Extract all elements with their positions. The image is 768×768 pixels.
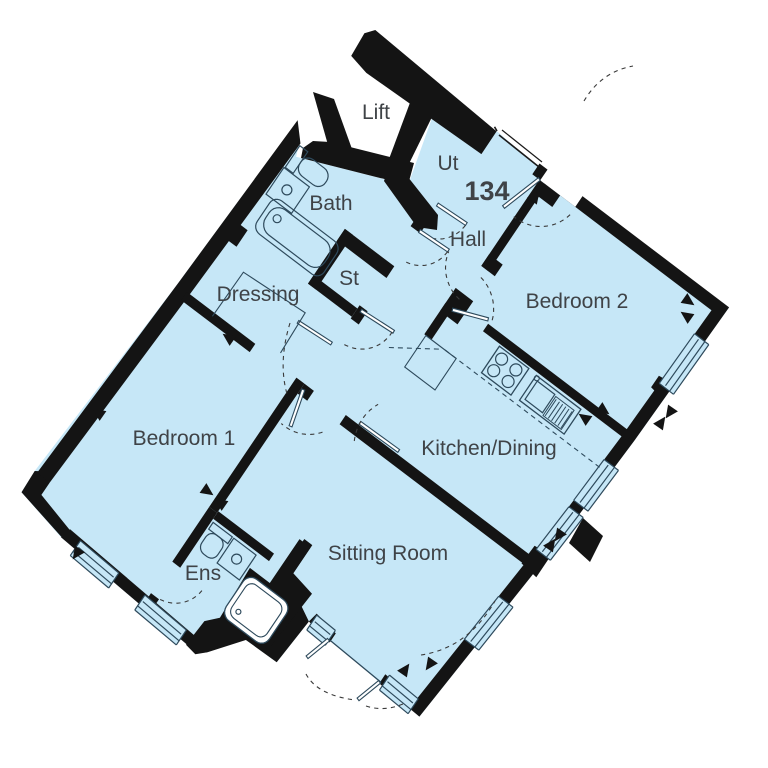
svg-text:Kitchen/Dining: Kitchen/Dining <box>421 437 556 460</box>
svg-text:Lift: Lift <box>362 101 390 124</box>
svg-text:Bath: Bath <box>309 192 352 215</box>
svg-text:Ens: Ens <box>185 562 221 585</box>
svg-text:Hall: Hall <box>450 228 486 251</box>
svg-text:Bedroom 1: Bedroom 1 <box>133 427 236 450</box>
svg-text:Ut: Ut <box>438 152 459 175</box>
svg-text:Bedroom 2: Bedroom 2 <box>526 290 629 313</box>
svg-text:St: St <box>339 267 359 290</box>
svg-text:Dressing: Dressing <box>217 283 300 306</box>
svg-text:Sitting Room: Sitting Room <box>328 542 448 565</box>
svg-text:134: 134 <box>464 176 509 206</box>
